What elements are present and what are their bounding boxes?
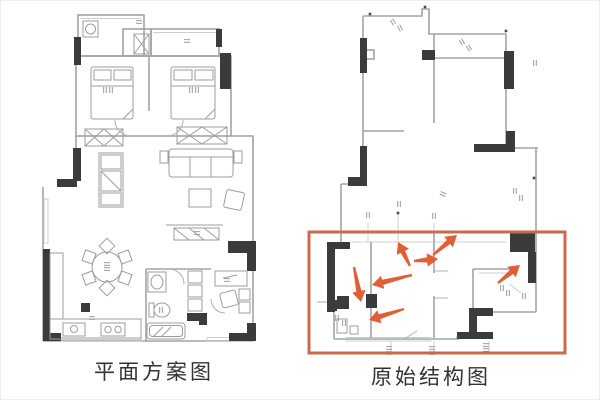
dimension-mark: [483, 344, 489, 347]
annotation-arrow-left: [372, 274, 412, 289]
dimension-mark: [160, 307, 163, 313]
annotation-arrow-up-right: [497, 265, 520, 284]
dimension-mark: [507, 290, 510, 296]
closet-top: [134, 34, 149, 54]
dimension-mark: [89, 317, 95, 320]
dimension-mark: [514, 188, 517, 194]
leader-dot: [533, 177, 536, 180]
annotation-arrow-up-right: [432, 235, 457, 256]
bathroom: [146, 269, 211, 341]
bed-right: [171, 67, 215, 119]
dimension-mark: [397, 25, 402, 31]
floor-plans-image: [1, 1, 600, 400]
annotation-arrow-up: [397, 242, 411, 267]
left-floor-plan: [43, 15, 256, 342]
dining-set: [82, 238, 132, 296]
right-plan-caption: 原始结构图: [371, 361, 491, 391]
right-floor-plan: [317, 6, 538, 355]
storage-shelves: [188, 271, 202, 311]
study-room: [211, 271, 250, 313]
dimension-mark: [136, 21, 142, 24]
leader-dot: [457, 336, 460, 339]
dimension-mark: [523, 293, 526, 299]
coffee-table: [189, 189, 211, 207]
sofa: [160, 149, 242, 177]
dimension-mark: [440, 192, 447, 197]
dimension-mark: [520, 195, 523, 201]
left-plan-caption: 平面方案图: [94, 356, 214, 386]
dimension-mark: [459, 39, 464, 45]
dimension-mark: [433, 213, 436, 219]
door-arc: [167, 120, 183, 136]
dimension-mark: [398, 201, 401, 207]
leader-dot: [424, 6, 427, 9]
dimension-mark: [367, 212, 370, 218]
annotation-arrow-down: [352, 267, 365, 302]
screenshot-canvas: 平面方案图 原始结构图: [0, 0, 600, 400]
washing-machine: [83, 21, 98, 37]
dimension-mark: [501, 285, 504, 291]
dimension-mark: [466, 45, 471, 51]
closet-niche: [123, 29, 151, 56]
dimension-mark: [534, 60, 537, 66]
annotation-arrow-left: [369, 308, 404, 323]
armchair: [223, 189, 244, 210]
hall-cabinet: [99, 153, 123, 207]
wardrobe-left: [85, 129, 123, 146]
dimension-mark: [390, 19, 395, 25]
leader-dot: [397, 212, 400, 215]
tv-bench: [166, 225, 223, 240]
dimension-mark: [343, 320, 346, 326]
dimension-mark: [483, 349, 489, 352]
dimension-mark: [224, 279, 230, 282]
leader-dot: [505, 30, 508, 33]
dimension-mark: [184, 40, 190, 43]
leader-dot: [369, 13, 372, 16]
